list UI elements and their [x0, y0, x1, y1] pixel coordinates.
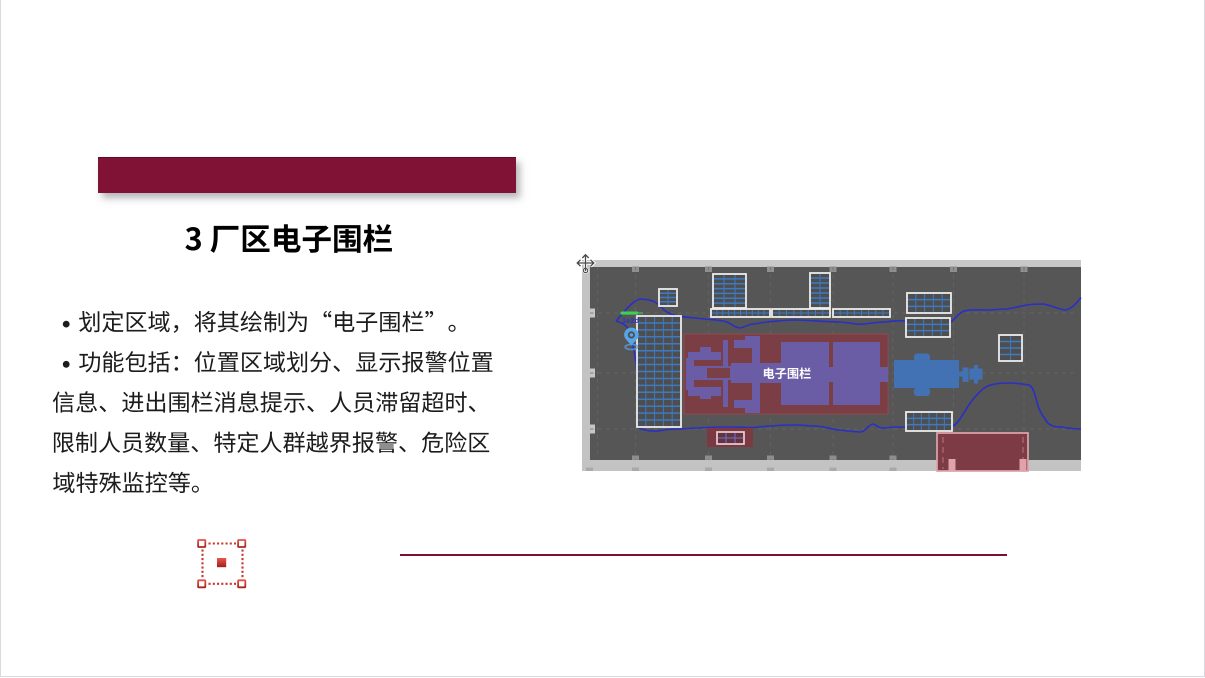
svg-text:1e2d: 1e2d — [622, 316, 640, 325]
